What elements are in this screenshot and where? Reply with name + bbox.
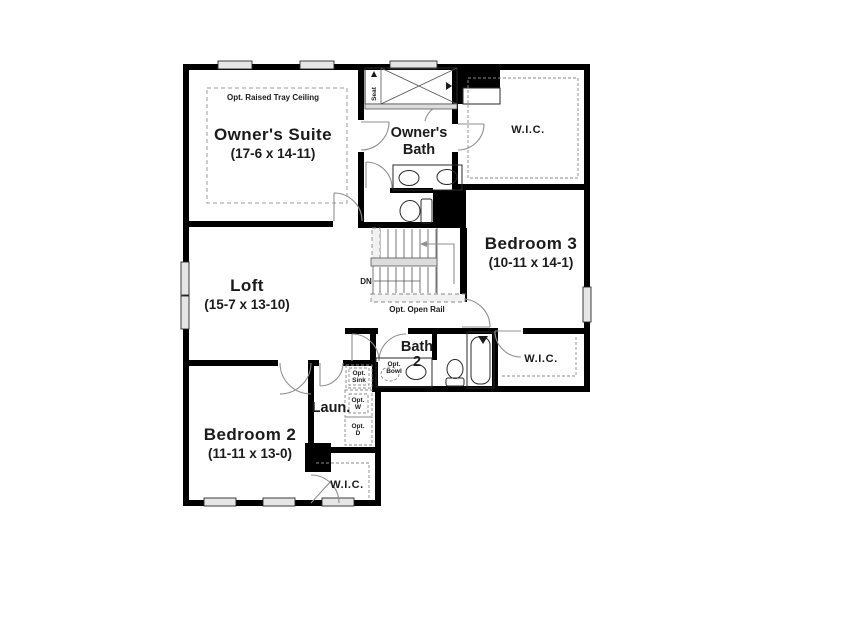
- bath2-vanity-fixture: [376, 358, 432, 387]
- opt-washer-label-2: W: [355, 404, 362, 411]
- room-labels: Opt. Raised Tray Ceiling Owner's Suite (…: [204, 86, 577, 491]
- owners-suite-label: Owner's Suite: [214, 125, 332, 144]
- bath2-label-1: Bath: [401, 339, 433, 355]
- owners-bath-label-2: Bath: [403, 142, 435, 158]
- shower-door-arrow-icon: [446, 82, 452, 90]
- chase-block-middle: [433, 190, 466, 228]
- window-loft-2: [181, 296, 189, 329]
- door-owners-bath: [361, 122, 389, 150]
- owners-suite-dims: (17-6 x 14-11): [231, 146, 316, 161]
- linen-shelf: [463, 88, 500, 104]
- bedroom2-label: Bedroom 2: [204, 425, 296, 444]
- window-bedroom2-1: [204, 498, 236, 506]
- bath2-toilet-fixture: [446, 360, 464, 387]
- owners-vanity-fixture: [393, 165, 462, 190]
- door-bedroom3: [462, 299, 490, 327]
- floor-plan-drawing: Opt. Raised Tray Ceiling Owner's Suite (…: [0, 0, 849, 623]
- bath2-label-2: 2: [413, 354, 421, 370]
- bedroom3-label: Bedroom 3: [485, 234, 577, 253]
- floor-plan-page: Opt. Raised Tray Ceiling Owner's Suite (…: [0, 0, 849, 623]
- opt-dryer-label-1: Opt.: [352, 423, 365, 430]
- door-laundry: [320, 363, 343, 386]
- laundry-label: Laun.: [312, 400, 351, 416]
- stair-rail-upper: [372, 228, 380, 258]
- window-bedroom3: [583, 287, 591, 322]
- opt-dryer-label-2: D: [356, 430, 361, 437]
- bedroom2-dims: (11-11 x 13-0): [208, 446, 292, 461]
- shower-seat-arrow-icon: [371, 71, 377, 77]
- chase-block-bottom: [305, 443, 331, 472]
- window-bedroom2-2: [263, 498, 295, 506]
- opt-bowl-label-2: Bowl: [386, 368, 402, 375]
- stair-landing: [371, 258, 437, 266]
- door-vestibule: [366, 162, 392, 188]
- opt-sink-label-1: Opt.: [353, 370, 366, 377]
- window-loft-1: [181, 262, 189, 295]
- owners-bath-label-1: Owner's: [391, 125, 448, 141]
- staircase: [371, 228, 465, 302]
- opt-sink-label-2: Sink: [352, 377, 366, 384]
- door-owners-suite: [334, 193, 362, 221]
- window-suite-2: [300, 61, 334, 69]
- wic-bedroom2-label: W.I.C.: [330, 479, 364, 491]
- opt-bowl-label-1: Opt.: [388, 361, 401, 368]
- open-rail-bar: [371, 294, 465, 302]
- window-suite-1: [218, 61, 252, 69]
- tub-faucet-icon: [478, 336, 488, 344]
- bedroom3-dims: (10-11 x 14-1): [489, 255, 574, 270]
- opt-washer-label-1: Opt.: [352, 397, 365, 404]
- door-wic-owner: [458, 124, 484, 150]
- window-wic2: [322, 498, 354, 506]
- loft-dims: (15-7 x 13-10): [204, 297, 290, 312]
- tray-ceiling-label: Opt. Raised Tray Ceiling: [227, 93, 319, 102]
- stairs-dn-label: DN: [360, 277, 372, 286]
- stair-direction-arrow-icon: [420, 241, 427, 247]
- wic-bedroom3-label: W.I.C.: [524, 353, 558, 365]
- wic-owner-label: W.I.C.: [511, 124, 545, 136]
- loft-label: Loft: [230, 276, 264, 295]
- owners-toilet-fixture: [400, 199, 432, 223]
- shower-seat-label: Seat: [371, 86, 378, 101]
- shower-fixture: [365, 68, 457, 109]
- door-wic-bedroom3: [495, 331, 521, 357]
- open-rail-label: Opt. Open Rail: [389, 305, 445, 314]
- bath2-tub-fixture: [467, 332, 494, 388]
